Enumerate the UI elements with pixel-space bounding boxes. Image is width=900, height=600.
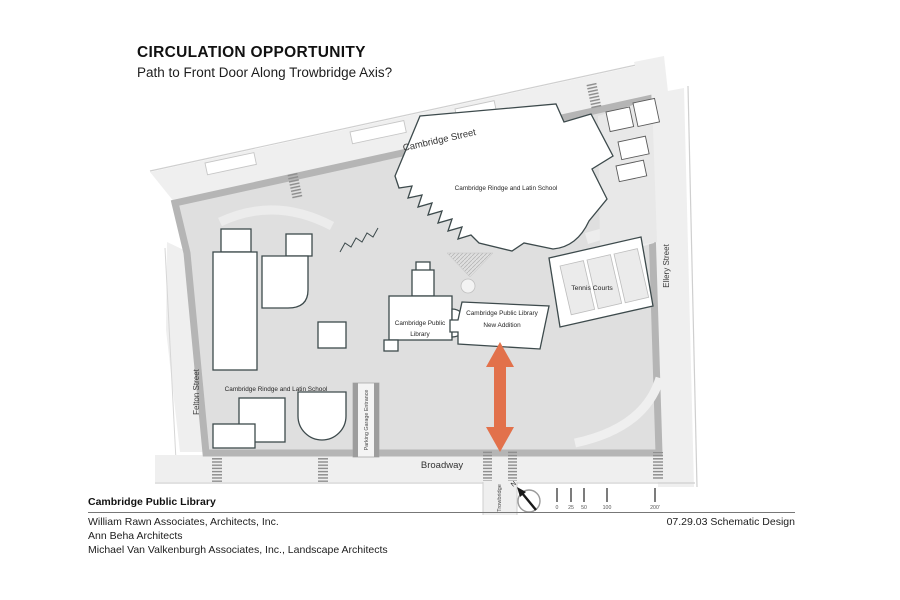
crls-north-label: Cambridge Rindge and Latin School [455,185,558,192]
library-label-line1: Cambridge Public [395,320,446,327]
footer-divider [88,512,795,513]
site-plan-drawing: Cambridge Street Broadway Ellery Street … [0,0,900,600]
scale-label-200: 200' [650,505,660,511]
footer-firm-line: William Rawn Associates, Architects, Inc… [88,516,388,530]
footer-firm-line: Ann Beha Architects [88,530,388,544]
building-crls-west-slab [213,252,257,370]
felton-street-label: Felton Street [192,368,201,415]
garage-entrance-label: Parking Garage Entrance [364,390,370,451]
building-crls-west-annex-mid [318,322,346,348]
tennis-courts-label: Tennis Courts [571,285,613,292]
building-crls-west-tower1 [221,229,251,252]
crls-west-label: Cambridge Rindge and Latin School [225,386,328,393]
library-label-line2: Library [410,331,430,338]
footer-date-phase: 07.29.03 Schematic Design [595,516,795,528]
building-crls-west-tower2 [286,234,312,256]
trowbridge-street-label: Trowbridge [497,484,503,512]
crosswalk [212,457,222,482]
garage-wall-east [374,383,379,457]
scale-label-100: 100 [603,505,612,511]
house [606,107,634,132]
building-crls-west-wing [262,256,308,308]
scale-bar [557,488,655,502]
house [633,98,660,126]
ellery-street-label: Ellery Street [662,243,671,287]
crosswalk [653,452,663,480]
building-crls-west-apse [298,392,346,440]
scale-label-0: 0 [556,505,559,511]
ne-houses-area [598,98,660,250]
scale-labels: 0 25 50 100 200' [556,505,660,511]
addition-label-line2: New Addition [483,322,521,329]
slide-page: CIRCULATION OPPORTUNITY Path to Front Do… [0,0,900,600]
footer-firm-line: Michael Van Valkenburgh Associates, Inc.… [88,544,388,558]
building-library-tower [412,270,434,296]
crosswalk [508,451,517,481]
crosswalk [318,457,328,482]
scale-label-25: 25 [568,505,574,511]
scale-label-50: 50 [581,505,587,511]
garage-wall-west [353,383,358,457]
crosswalk [483,451,492,481]
plaza-circle [461,279,475,293]
addition-label-line1: Cambridge Public Library [466,310,539,317]
building-crls-west-annex-sw [213,424,255,448]
broadway-label: Broadway [421,460,463,471]
building-library-stub [384,340,398,351]
footer-firm-list: William Rawn Associates, Architects, Inc… [88,516,388,557]
footer-project-name: Cambridge Public Library [88,496,216,508]
